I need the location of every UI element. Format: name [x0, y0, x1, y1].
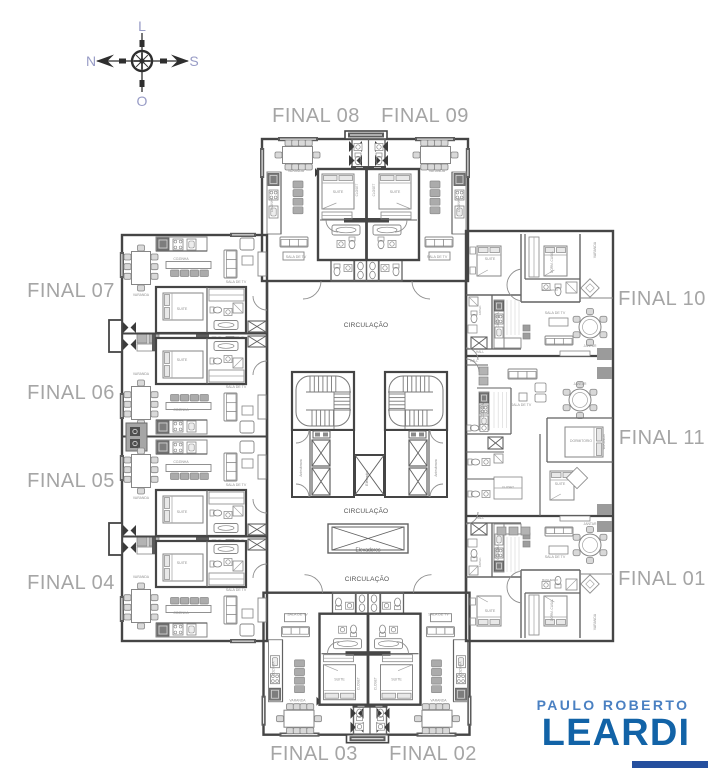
svg-text:Antecâmara: Antecâmara — [434, 459, 438, 476]
svg-text:N: N — [86, 53, 96, 69]
svg-text:FINAL 04: FINAL 04 — [27, 572, 115, 594]
svg-text:VARANDA: VARANDA — [133, 372, 150, 376]
svg-text:SALA DE TV: SALA DE TV — [287, 613, 308, 617]
svg-text:COZINHA: COZINHA — [270, 197, 274, 212]
svg-text:SUITE: SUITE — [485, 257, 496, 261]
svg-text:COZINHA: COZINHA — [173, 611, 189, 615]
svg-text:LEARDI: LEARDI — [542, 712, 691, 754]
svg-text:FINAL 05: FINAL 05 — [27, 470, 115, 492]
svg-text:COZINHA: COZINHA — [496, 312, 500, 328]
svg-text:L: L — [138, 18, 146, 34]
svg-text:SUITE: SUITE — [177, 561, 188, 565]
svg-text:DORM. CASAL: DORM. CASAL — [550, 251, 554, 273]
svg-text:FINAL 07: FINAL 07 — [27, 280, 115, 302]
svg-text:FINAL 06: FINAL 06 — [27, 382, 115, 404]
svg-text:SUITE: SUITE — [177, 307, 188, 311]
svg-text:SALA DE TV: SALA DE TV — [511, 403, 532, 407]
svg-text:COZINHA: COZINHA — [173, 460, 189, 464]
svg-text:CLOSET: CLOSET — [374, 677, 378, 690]
svg-text:CIRCULAÇÃO: CIRCULAÇÃO — [344, 320, 389, 329]
svg-text:SALA DE TV: SALA DE TV — [428, 613, 449, 617]
svg-text:VARANDA: VARANDA — [288, 169, 305, 173]
svg-text:SALA DE TV: SALA DE TV — [427, 255, 448, 259]
svg-text:ANTEC.: ANTEC. — [478, 305, 482, 315]
svg-text:FINAL 10: FINAL 10 — [618, 288, 706, 310]
svg-text:SALA DE TV: SALA DE TV — [226, 385, 247, 389]
svg-text:SUITE: SUITE — [334, 678, 345, 682]
svg-text:SALA DE TV: SALA DE TV — [226, 588, 247, 592]
svg-text:VARANDA: VARANDA — [430, 699, 447, 703]
svg-text:COZINHA: COZINHA — [496, 544, 500, 560]
svg-text:FINAL 09: FINAL 09 — [381, 105, 469, 127]
svg-text:FINAL 11: FINAL 11 — [619, 427, 705, 449]
svg-text:SUITE: SUITE — [177, 510, 188, 514]
svg-text:PAULO ROBERTO: PAULO ROBERTO — [537, 697, 690, 713]
svg-text:SALA DE TV: SALA DE TV — [226, 280, 247, 284]
svg-text:CLOSET: CLOSET — [357, 677, 361, 690]
svg-text:SUITE: SUITE — [391, 678, 402, 682]
svg-text:Antecâmara: Antecâmara — [299, 459, 303, 476]
svg-text:SUITE: SUITE — [390, 190, 401, 194]
svg-text:O: O — [137, 93, 148, 109]
svg-text:JANTAR: JANTAR — [574, 382, 587, 386]
svg-text:FINAL 01: FINAL 01 — [618, 568, 706, 590]
svg-text:COZINHA: COZINHA — [459, 661, 463, 676]
svg-text:SALA DE TV: SALA DE TV — [286, 255, 307, 259]
svg-text:VARANDA: VARANDA — [133, 496, 150, 500]
svg-text:VARANDA: VARANDA — [593, 241, 597, 258]
svg-text:DORM. CASAL: DORM. CASAL — [550, 599, 554, 621]
svg-text:HALL: HALL — [470, 359, 478, 363]
svg-text:CIRCULAÇÃO: CIRCULAÇÃO — [345, 574, 390, 583]
svg-text:CLOSET: CLOSET — [355, 184, 359, 197]
svg-text:VARANDA: VARANDA — [593, 613, 597, 630]
svg-text:VARANDA: VARANDA — [429, 169, 446, 173]
svg-text:COZINHA: COZINHA — [481, 403, 485, 419]
svg-text:COZINHA: COZINHA — [457, 197, 461, 212]
svg-text:SALA DE TV: SALA DE TV — [545, 555, 566, 559]
svg-text:VARANDA: VARANDA — [133, 575, 150, 579]
svg-text:SUITE: SUITE — [555, 482, 566, 486]
svg-text:VARANDA: VARANDA — [133, 293, 150, 297]
svg-text:S: S — [189, 53, 198, 69]
svg-text:JANTAR: JANTAR — [584, 522, 597, 526]
svg-text:COZINHA: COZINHA — [173, 408, 189, 412]
svg-text:FINAL 03: FINAL 03 — [270, 743, 358, 765]
svg-text:FINAL 02: FINAL 02 — [389, 743, 477, 765]
svg-text:CLOSET: CLOSET — [372, 184, 376, 197]
svg-text:BANHEIRO: BANHEIRO — [542, 288, 558, 292]
svg-text:CIRCULAÇÃO: CIRCULAÇÃO — [344, 506, 389, 515]
svg-text:COZINHA: COZINHA — [173, 257, 189, 261]
svg-text:JANTAR: JANTAR — [584, 344, 597, 348]
svg-text:COZINHA: COZINHA — [272, 661, 276, 676]
svg-text:DORMITORIO: DORMITORIO — [570, 439, 592, 443]
svg-text:SUITE: SUITE — [333, 190, 344, 194]
svg-text:ANTEC.: ANTEC. — [478, 557, 482, 567]
svg-text:Elevador: Elevador — [364, 469, 369, 485]
svg-text:SALA DE TV: SALA DE TV — [545, 311, 566, 315]
svg-text:HALL: HALL — [476, 516, 484, 520]
svg-text:Elevadores: Elevadores — [355, 548, 381, 554]
svg-text:BANHEIRO: BANHEIRO — [542, 578, 558, 582]
svg-text:SUITE: SUITE — [177, 358, 188, 362]
svg-text:HALL: HALL — [476, 350, 484, 354]
svg-text:FINAL 08: FINAL 08 — [272, 105, 360, 127]
svg-text:CLOSET: CLOSET — [502, 485, 514, 489]
svg-text:VARANDA: VARANDA — [289, 699, 306, 703]
svg-text:VARANDA: VARANDA — [602, 434, 606, 450]
svg-text:SUITE: SUITE — [485, 609, 496, 613]
svg-text:SALA DE TV: SALA DE TV — [226, 483, 247, 487]
